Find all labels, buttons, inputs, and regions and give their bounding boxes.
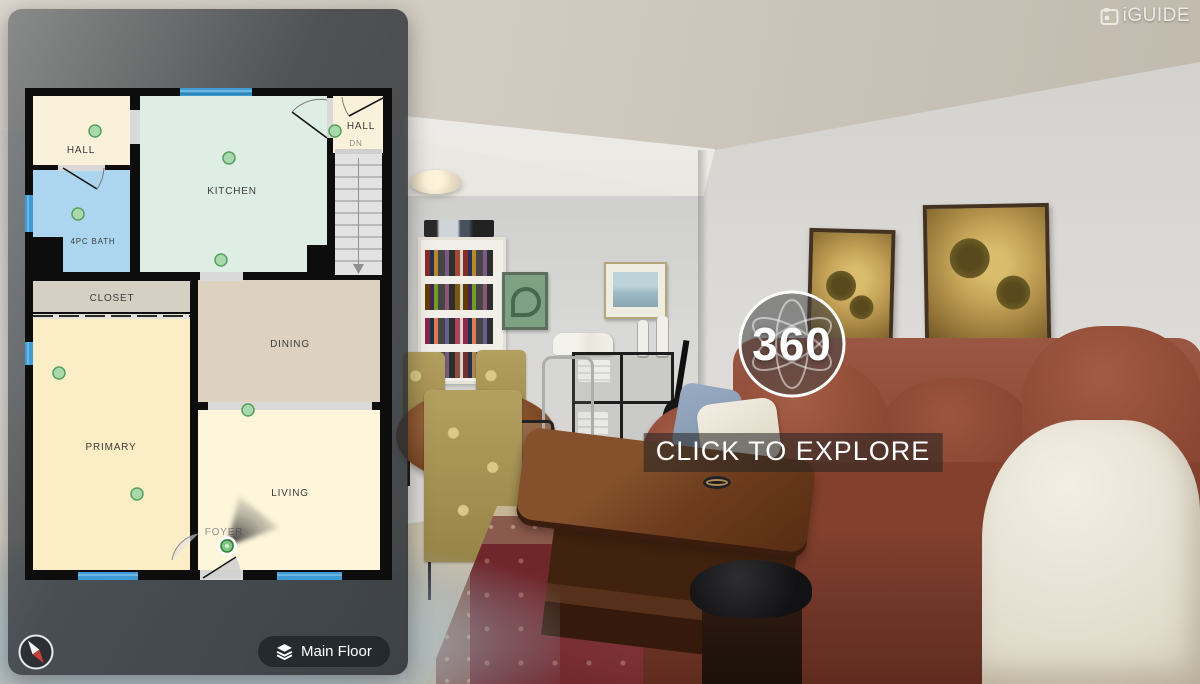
layers-icon <box>276 643 293 660</box>
wall-notch <box>33 237 63 272</box>
room-kitchen[interactable] <box>140 96 327 272</box>
pano-marker[interactable] <box>72 208 84 220</box>
virtual-tour-viewer: 360 CLICK TO EXPLORE iGUIDE <box>0 0 1200 684</box>
pano-marker[interactable] <box>242 404 254 416</box>
explore-caption[interactable]: CLICK TO EXPLORE <box>644 433 943 472</box>
coaster <box>703 476 731 489</box>
badge-360-label: 360 <box>737 289 847 399</box>
stairs-direction-label: DN <box>349 139 362 148</box>
leather-stool <box>690 560 812 618</box>
compass-button[interactable] <box>17 633 55 671</box>
pano-marker[interactable] <box>223 152 235 164</box>
pano-marker[interactable] <box>53 367 65 379</box>
ceiling-light <box>410 170 462 194</box>
pano-marker[interactable] <box>89 125 101 137</box>
room-label-kitchen: KITCHEN <box>207 186 257 197</box>
room-label-primary: PRIMARY <box>86 442 137 453</box>
floor-selector-button[interactable]: Main Floor <box>258 636 390 667</box>
white-throw-blanket <box>982 420 1200 684</box>
floorplan-map[interactable]: HALL 4PC BATH KITCHEN HALL DN CLOSET DIN… <box>25 88 392 580</box>
book-row <box>425 250 493 276</box>
floral-art-frame <box>923 203 1051 347</box>
room-label-hall-stairs: HALL <box>347 121 375 132</box>
room-label-dining: DINING <box>270 339 310 350</box>
floorplan-panel: HALL 4PC BATH KITCHEN HALL DN CLOSET DIN… <box>8 9 408 675</box>
floor-selector-label: Main Floor <box>301 643 372 660</box>
staircase <box>335 149 382 275</box>
iguide-logo-text: iGUIDE <box>1123 5 1190 27</box>
shelf-top-decor <box>424 220 494 237</box>
book-row <box>425 318 493 344</box>
room-label-hall-upper-left: HALL <box>67 145 95 156</box>
abstract-art-frame <box>502 272 548 330</box>
seascape-art-frame <box>604 262 667 319</box>
room-label-living: LIVING <box>271 488 309 499</box>
current-position-marker[interactable] <box>219 538 236 555</box>
wall-notch <box>307 245 327 272</box>
badge-360[interactable]: 360 <box>737 289 847 399</box>
book-row <box>425 284 493 310</box>
iguide-logo[interactable]: iGUIDE <box>1100 5 1190 27</box>
pano-marker[interactable] <box>131 488 143 500</box>
compass-needle-icon <box>17 633 55 671</box>
room-label-closet: CLOSET <box>90 293 135 304</box>
iguide-icon <box>1100 7 1119 26</box>
room-label-bath: 4PC BATH <box>71 237 116 246</box>
pano-marker[interactable] <box>329 125 341 137</box>
pano-marker[interactable] <box>215 254 227 266</box>
